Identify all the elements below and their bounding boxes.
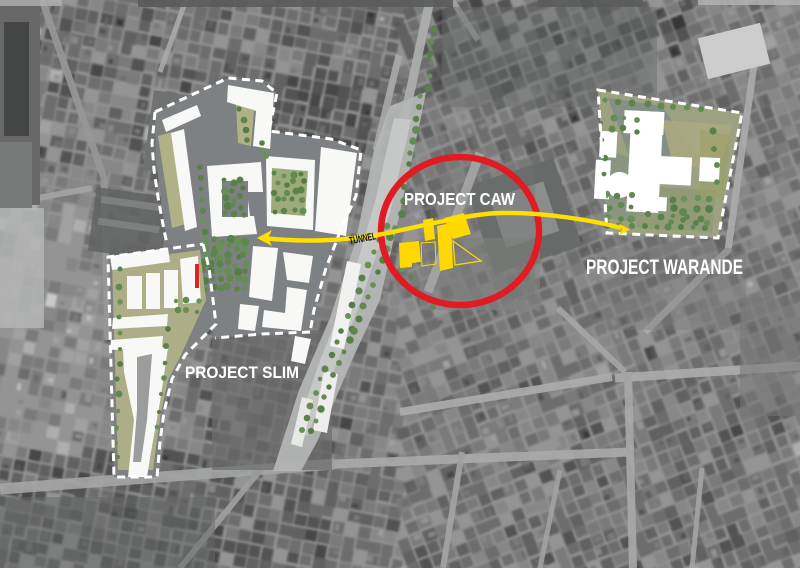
svg-text:PROJECT SLIM: PROJECT SLIM	[185, 363, 299, 382]
svg-text:PROJECT WARANDE: PROJECT WARANDE	[586, 256, 743, 279]
svg-text:PROJECT CAW: PROJECT CAW	[404, 189, 515, 209]
